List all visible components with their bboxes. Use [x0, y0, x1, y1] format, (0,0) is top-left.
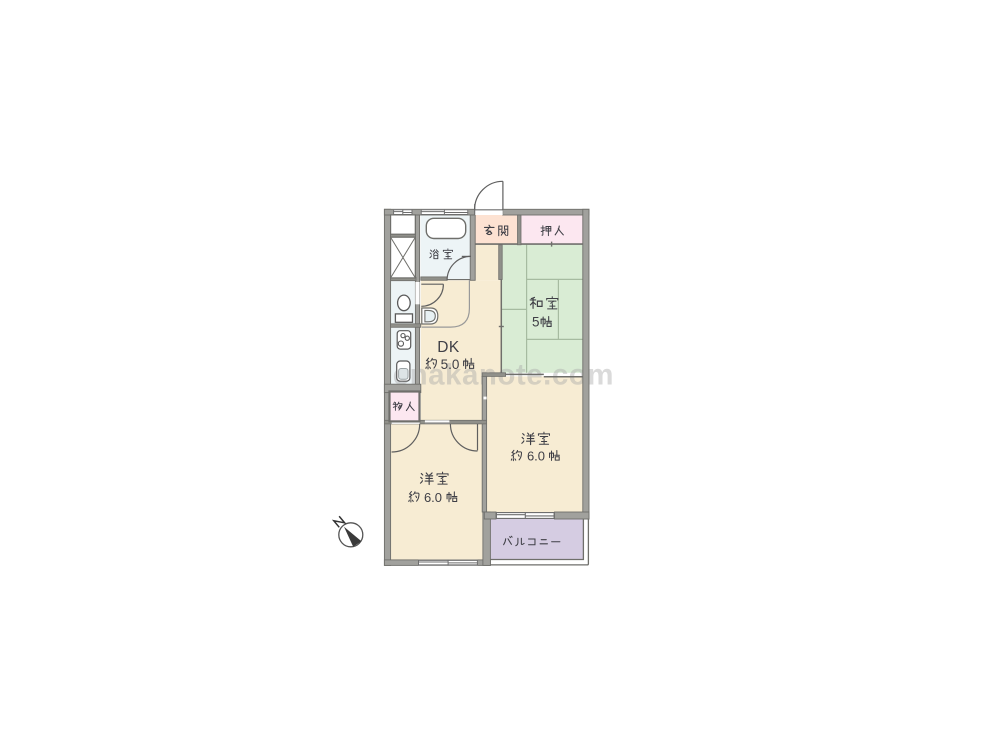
svg-text:6.0: 6.0: [424, 490, 442, 505]
svg-text:DK: DK: [437, 339, 460, 356]
svg-text:5.0: 5.0: [441, 357, 460, 372]
svg-text:6.0: 6.0: [527, 449, 545, 464]
svg-text:5: 5: [532, 315, 540, 330]
